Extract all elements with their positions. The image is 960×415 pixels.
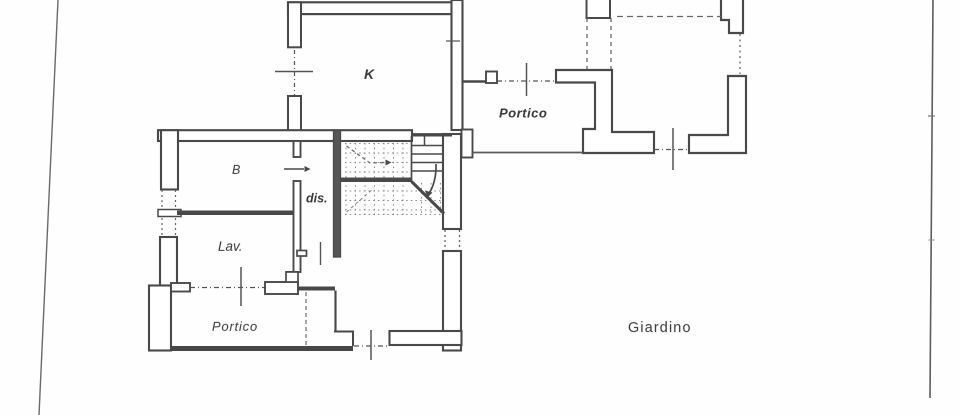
svg-text:Portico: Portico [212,319,258,334]
svg-text:Lav.: Lav. [218,239,243,254]
svg-text:dis.: dis. [306,191,328,205]
svg-text:Giardino: Giardino [628,320,692,336]
svg-text:Portico: Portico [499,106,547,121]
svg-text:K: K [364,66,375,82]
svg-text:B: B [232,163,240,177]
